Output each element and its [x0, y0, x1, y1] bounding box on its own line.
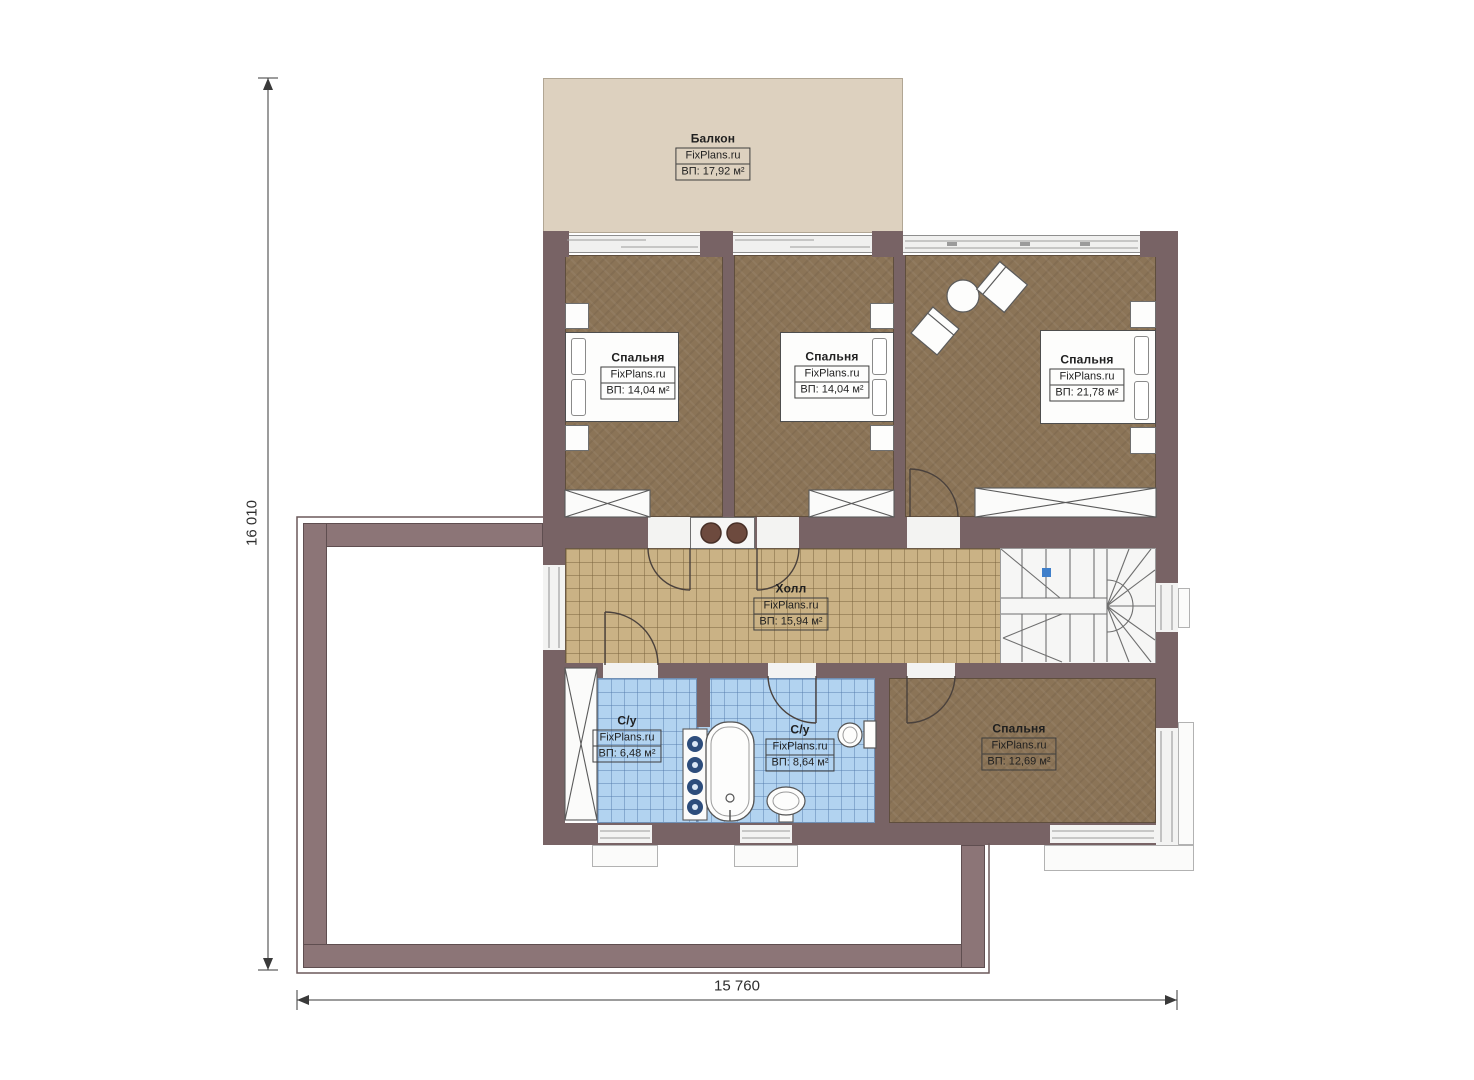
balcony-glazing [543, 235, 1178, 253]
room-area: ВП: 14,04 м² [601, 383, 674, 399]
window-sill [1178, 588, 1190, 628]
window-bedroom4-south [1050, 825, 1156, 843]
nightstand-icon [1130, 301, 1156, 328]
window-sill [592, 845, 658, 867]
room-label-bedroom2: Спальня FixPlans.ru ВП: 14,04 м² [794, 350, 869, 399]
door-opening [648, 517, 690, 548]
door-opening [757, 517, 799, 548]
room-label-balcony: Балкон FixPlans.ru ВП: 17,92 м² [675, 132, 750, 181]
wall-pier [1140, 231, 1178, 257]
wall-pier [872, 231, 903, 257]
room-label-hall: Холл FixPlans.ru ВП: 15,94 м² [753, 582, 828, 631]
room-area: ВП: 17,92 м² [676, 164, 749, 180]
dimension-height-line [258, 78, 278, 970]
pillow-icon [1134, 381, 1149, 420]
room-name: Спальня [1049, 353, 1124, 367]
floor-plan: Балкон FixPlans.ru ВП: 17,92 м² Спальня … [0, 0, 1474, 1080]
dimension-width-label: 15 760 [714, 978, 760, 995]
window-south [740, 825, 792, 843]
staircase [1000, 548, 1156, 665]
window-sill [734, 845, 798, 867]
brand-watermark: FixPlans.ru [593, 731, 660, 746]
door-opening [907, 663, 955, 678]
pillow-icon [1134, 336, 1149, 375]
room-area: ВП: 12,69 м² [982, 754, 1055, 770]
door-opening [907, 517, 960, 548]
room-name: С/у [765, 723, 834, 737]
room-name: Спальня [794, 350, 869, 364]
room-area: ВП: 21,78 м² [1050, 385, 1123, 401]
wall-pier [700, 231, 733, 257]
brand-watermark: FixPlans.ru [676, 149, 749, 164]
nightstand-icon [565, 303, 589, 329]
room-name: С/у [592, 714, 661, 728]
room-area: ВП: 6,48 м² [593, 746, 660, 762]
brand-watermark: FixPlans.ru [754, 599, 827, 614]
window-hall-west [543, 565, 565, 650]
room-name: Спальня [600, 351, 675, 365]
brand-watermark: FixPlans.ru [601, 368, 674, 383]
wall-partition [697, 663, 710, 727]
room-name: Балкон [675, 132, 750, 146]
nightstand-icon [870, 425, 894, 451]
room-label-bedroom1: Спальня FixPlans.ru ВП: 14,04 м² [600, 351, 675, 400]
room-label-bathroom2: С/у FixPlans.ru ВП: 8,64 м² [765, 723, 834, 772]
wall-left [543, 255, 565, 845]
door-opening [768, 663, 816, 678]
brand-watermark: FixPlans.ru [795, 367, 868, 382]
wall-pier [543, 231, 569, 257]
nightstand-icon [1130, 427, 1156, 454]
roof-band-left [303, 523, 327, 968]
room-area: ВП: 14,04 м² [795, 382, 868, 398]
room-area: ВП: 15,94 м² [754, 614, 827, 630]
wall-partition [723, 255, 734, 517]
brand-watermark: FixPlans.ru [766, 740, 833, 755]
wall-partition [875, 663, 889, 823]
room-name: Спальня [981, 722, 1056, 736]
pillow-icon [872, 338, 887, 375]
wall-partition [894, 255, 905, 517]
corner-window-sill [1178, 722, 1194, 845]
door-opening [603, 663, 658, 678]
room-area: ВП: 8,64 м² [766, 755, 833, 771]
window-stairs-east [1156, 583, 1178, 632]
pillow-icon [571, 379, 586, 416]
nightstand-icon [565, 425, 589, 451]
pillow-icon [872, 379, 887, 416]
window-south [598, 825, 652, 843]
corner-window-sill [1044, 845, 1194, 871]
wall-niche [690, 517, 755, 549]
room-label-bedroom3: Спальня FixPlans.ru ВП: 21,78 м² [1049, 353, 1124, 402]
room-label-bedroom4: Спальня FixPlans.ru ВП: 12,69 м² [981, 722, 1056, 771]
nightstand-icon [870, 303, 894, 329]
roof-band-bottom [303, 944, 985, 968]
room-name: Холл [753, 582, 828, 596]
room-label-bathroom1: С/у FixPlans.ru ВП: 6,48 м² [592, 714, 661, 763]
brand-watermark: FixPlans.ru [1050, 370, 1123, 385]
pillow-icon [571, 338, 586, 375]
roof-band-top [303, 523, 543, 547]
roof-band-right [961, 845, 985, 968]
brand-watermark: FixPlans.ru [982, 739, 1055, 754]
dimension-height-label: 16 010 [244, 500, 261, 546]
window-bedroom4-east [1156, 728, 1178, 845]
